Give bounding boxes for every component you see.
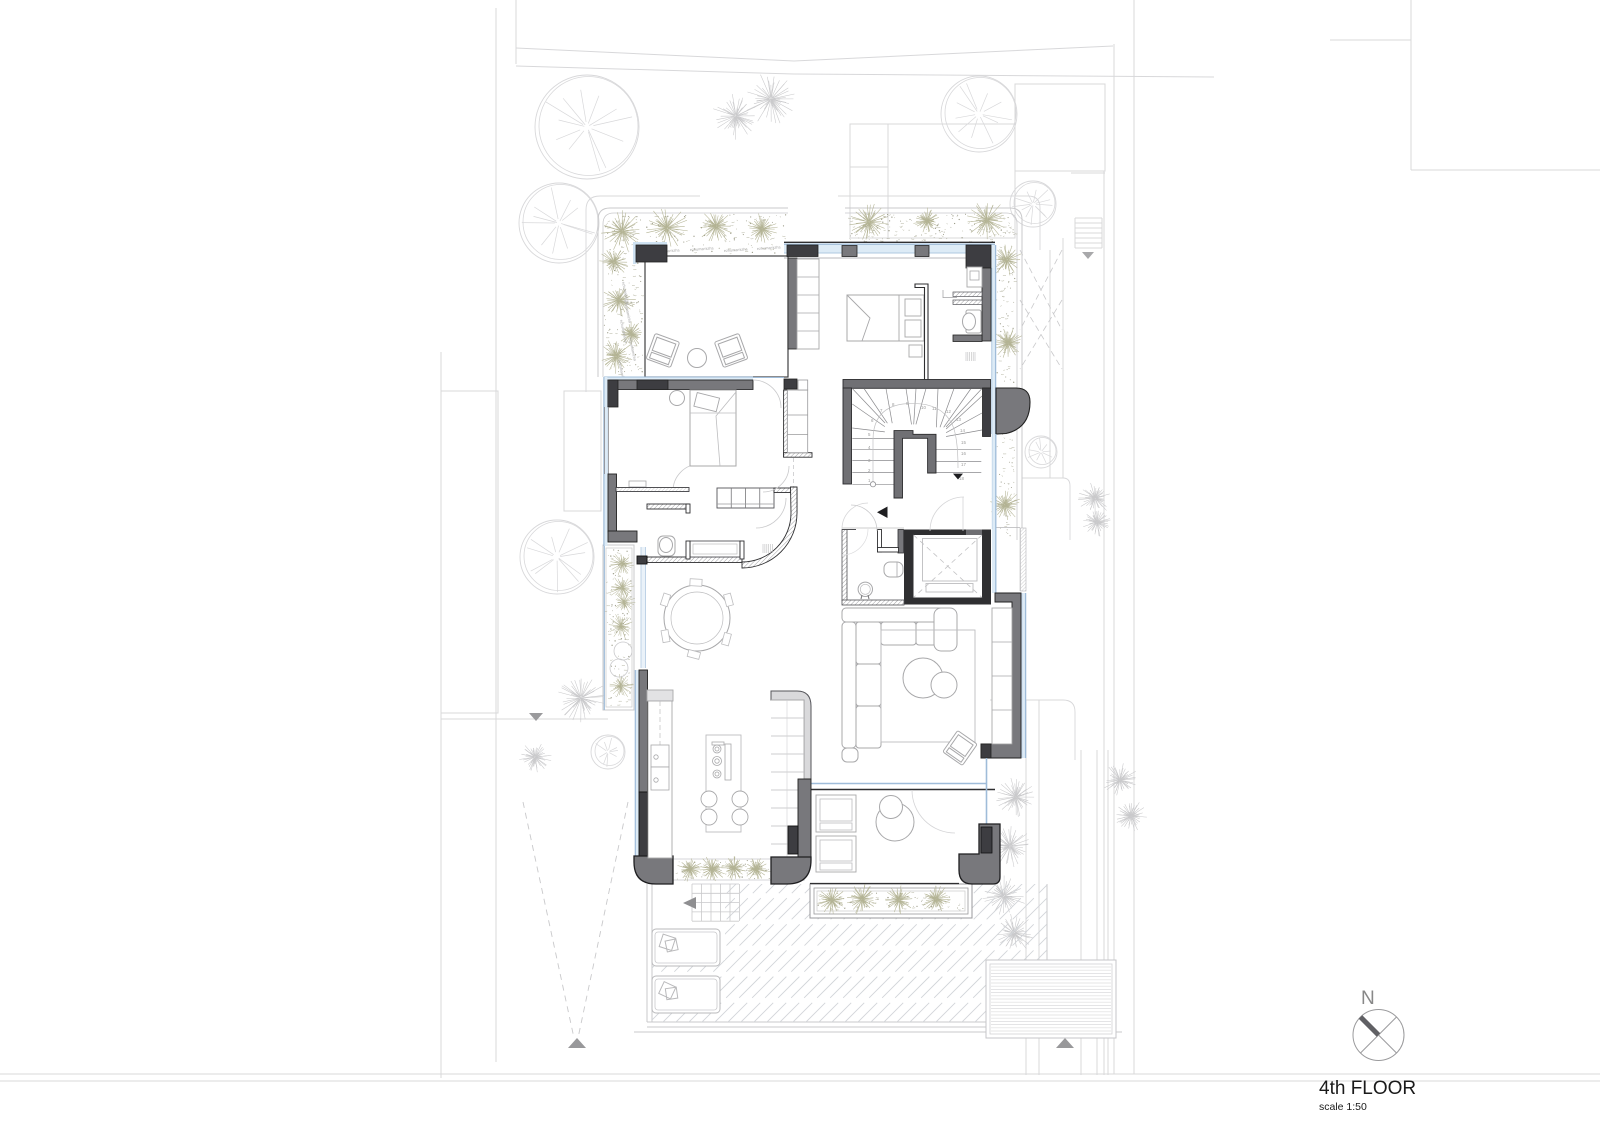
svg-text:15: 15 xyxy=(961,440,966,445)
svg-text:17: 17 xyxy=(961,462,966,467)
svg-text:11: 11 xyxy=(932,406,937,411)
svg-text:ezhumamizha: ezhumamizha xyxy=(690,246,715,252)
svg-text:ezhumamizha: ezhumamizha xyxy=(724,247,749,253)
svg-text:7: 7 xyxy=(880,408,883,413)
svg-text:ezhumamizha: ezhumamizha xyxy=(757,245,782,251)
svg-text:13: 13 xyxy=(956,417,961,422)
svg-text:12: 12 xyxy=(946,409,951,414)
svg-text:4th FLOOR: 4th FLOOR xyxy=(1319,1078,1416,1099)
svg-text:5: 5 xyxy=(868,432,871,437)
svg-text:1: 1 xyxy=(868,478,871,483)
svg-text:14: 14 xyxy=(960,428,965,433)
svg-text:ezhumamizha: ezhumamizha xyxy=(619,319,628,344)
svg-text:ezhumamizha: ezhumamizha xyxy=(628,337,637,362)
svg-text:8: 8 xyxy=(892,402,895,407)
svg-text:16: 16 xyxy=(961,451,966,456)
svg-text:N: N xyxy=(1361,988,1375,1009)
svg-text:4: 4 xyxy=(868,445,871,450)
svg-text:10: 10 xyxy=(921,405,926,410)
svg-text:scale 1:50: scale 1:50 xyxy=(1319,1101,1367,1113)
